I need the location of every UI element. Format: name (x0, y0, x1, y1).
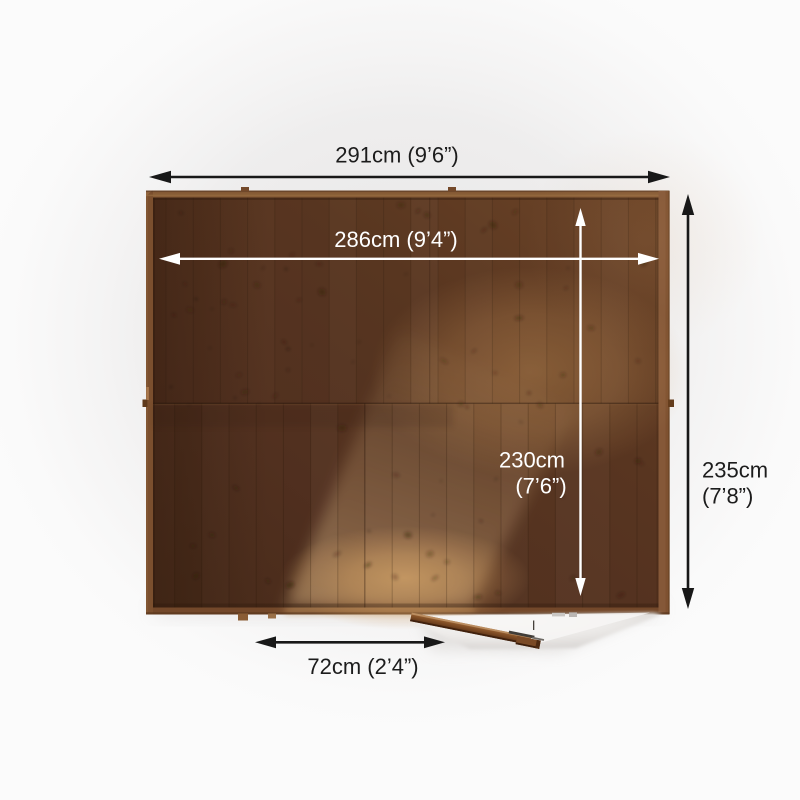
svg-text:72cm (2’4”): 72cm (2’4”) (307, 654, 418, 679)
svg-text:286cm (9’4”): 286cm (9’4”) (334, 227, 457, 252)
svg-text:235cm: 235cm (702, 458, 768, 483)
svg-text:230cm: 230cm (499, 448, 565, 473)
svg-text:(7’6”): (7’6”) (515, 474, 566, 499)
svg-text:(7’8”): (7’8”) (702, 484, 753, 509)
svg-text:291cm (9’6”): 291cm (9’6”) (335, 143, 458, 168)
